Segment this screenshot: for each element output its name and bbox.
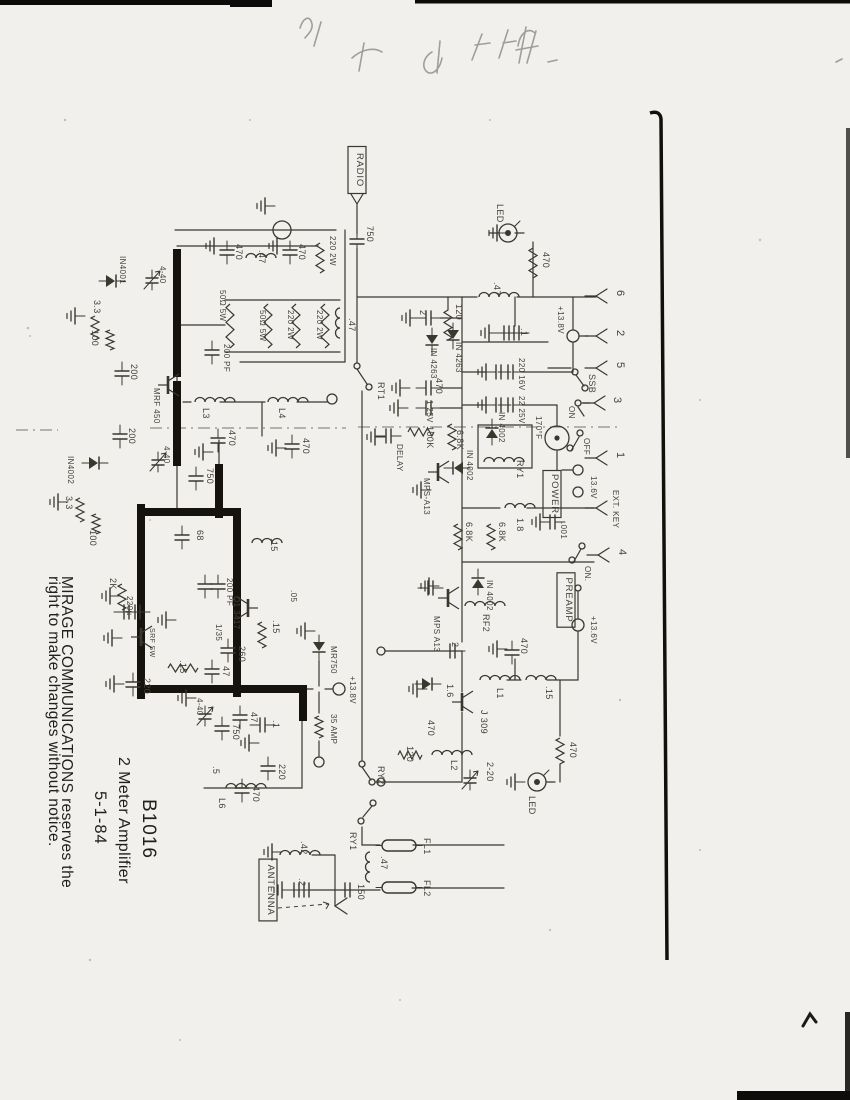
ground-icon [390,400,408,416]
component-label: RY1 [348,832,358,851]
component-label: 200 [127,428,137,444]
wire [576,375,584,386]
ground-icon [297,623,315,639]
component-label: 1 25V [425,400,434,423]
ground-icon [507,774,525,790]
component-label: OFF [582,438,591,455]
terminal-circle [579,543,585,549]
component-label: MPS-A13 [422,478,431,515]
component-label: 3 [611,397,623,404]
inductor-icon [480,676,520,681]
component-label: 470 [297,244,307,260]
component-label: IN 4263 [454,342,463,373]
component-label: DELAY [395,444,404,472]
component-label: 470 [301,438,311,454]
signal-label: ANTENNA [265,865,276,916]
inductor-icon [336,308,341,338]
component-label: 1.8 [515,518,525,532]
component-label: 220 2W [328,236,337,266]
component-label: .42 [299,841,309,855]
capacitor-icon [285,435,299,458]
inductor-icon [465,602,505,607]
component-label: IN 4002 [485,580,494,611]
component-label: L3 [201,408,211,419]
capacitor-icon [220,241,234,264]
model-number: B1016 [138,799,159,859]
component-label: L4 [277,408,287,419]
component-label: ON [567,406,576,419]
component-label: EXT. KEY [611,490,620,529]
capacitor-icon [376,429,401,443]
ground-icon [158,612,176,628]
connector-chevron-icon [583,396,605,410]
signal-label: POWER [549,474,560,514]
ground-icon [104,630,122,646]
component-label: 220µ [125,596,134,616]
wire [362,767,371,780]
inductor-icon [268,398,308,403]
component-label: 50Ω 5W [258,310,267,342]
component-label: RT1 [376,382,386,400]
ground-icon [257,198,275,214]
component-label: .47 [379,856,389,870]
revision-date: 5-1-84 [91,791,109,845]
component-label: .15 [178,660,188,674]
component-label: 470 [434,378,444,394]
ground-icon [268,440,286,456]
component-label: IN4002 [66,456,75,484]
wire [578,407,584,416]
ground-icon [241,735,259,751]
component-label: 2-20 [485,762,495,782]
component-label: RF2 [481,614,491,632]
component-label: 6.8K [464,522,474,542]
component-label: MR750 [329,646,338,674]
component-label: .05 [289,590,298,602]
capacitor-icon [235,779,249,802]
capacitor-icon [211,429,225,452]
product-name: 2 Meter Amplifier [115,757,132,884]
terminal-circle [333,683,345,695]
diode-icon [82,457,108,469]
signal-label: RADIO [354,153,365,187]
component-label: 1/35 [214,624,223,641]
antenna-icon [278,898,347,914]
signal-label-box: ANTENNA [259,859,277,921]
component-label: 170°F [534,416,543,439]
ground-icon [367,429,385,445]
component-label: 22 25V [517,396,526,424]
component-label: 1 [614,452,626,459]
component-label: FL2 [422,880,432,897]
capacitor-icon [350,230,364,253]
component-label: LED [495,204,505,223]
component-label: IN 4002 [465,450,474,481]
component-label: 220 16V [517,358,526,391]
scanned-schematic-page: MIRAGE COMMUNICATIONS reserves the right… [0,0,850,1100]
component-label: RY2 [376,766,386,785]
component-label: 220 2W [315,310,324,340]
capacitor-icon [261,757,275,780]
component-label: 220 [277,764,287,780]
wire [351,194,357,204]
component-label: SRF SW [148,628,155,658]
component-label: 100K [425,426,435,449]
component-label: 2K [108,578,118,590]
capacitor-icon [505,641,519,664]
component-label: 200 PF [222,344,231,372]
resistor-icon [106,330,114,350]
component-label: 2 [418,310,428,315]
component-label: 13.6V [589,476,598,499]
resistor-icon [258,622,266,648]
component-label: 2 [450,642,460,647]
inductor-icon [195,398,235,403]
capacitor-icon [189,467,203,490]
resistor-icon [76,498,84,522]
led-icon [528,770,549,791]
component-label: 220 2W [286,310,295,340]
component-label: IN4001 [118,256,127,284]
inductor-icon [526,676,556,681]
component-label: 6 [614,290,626,297]
component-label: ON. [583,566,592,581]
terminal-circle [573,465,583,475]
resistor-icon [315,716,323,738]
connector-chevron-icon [585,501,607,515]
component-label: 6.8K [497,522,507,542]
capacitor-icon [221,639,235,662]
diode-icon [472,569,484,595]
scan-specks [27,119,762,1041]
component-label: 4 [616,549,628,556]
capacitor-icon [113,425,127,448]
component-label: IN 4002 [497,412,506,443]
wire [357,369,367,384]
ground-icon [264,844,282,860]
wire [363,806,372,817]
component-label: .47 [492,282,502,296]
handwriting-marks [300,18,842,73]
ground-icon [402,310,420,326]
component-label: +13.8V [348,676,357,704]
capacitor-icon [205,660,219,683]
component-label: .5 [211,766,221,774]
component-label: RY1 [515,460,525,479]
diode-icon [415,678,441,690]
component-label: .15 [271,620,281,634]
terminal-circle [577,430,583,436]
diode-icon [486,419,498,445]
transistor-icon [438,587,459,609]
thermal-switch-icon [545,426,569,450]
component-label: 120 [405,746,415,762]
component-label: 47 [221,666,231,677]
trimmer-capacitor-icon [144,270,160,290]
terminal-circle [327,394,337,404]
led-icon [499,221,520,242]
component-label: 470 [234,244,244,260]
component-label: 3.3 [64,496,74,510]
component-label: 200 [129,364,139,380]
terminal-circle [359,761,365,767]
capacitor-icon [198,575,212,598]
connector-chevron-icon [585,361,607,375]
component-label: L6 [217,798,227,809]
component-label: L2 [449,760,459,771]
inductor-icon [432,751,472,755]
signal-label: PREAMP [563,578,574,623]
component-label: L1 [495,688,505,699]
component-label: 150 [356,884,366,900]
component-label: LED [527,796,537,815]
component-label: 470 [541,252,551,268]
component-label: Q1 3417 [232,596,241,630]
capacitor-icon [115,362,129,385]
component-label: .2 [297,878,307,886]
component-label: 35 AMP [329,714,338,744]
component-label: 260 [237,646,247,662]
ground-icon [102,588,120,604]
resistor-icon [454,524,462,550]
terminal-circle [370,800,376,806]
wire [357,194,363,204]
capacitor-icon [283,241,297,264]
ground-icon [392,380,410,396]
scan-edge-artifacts [0,0,850,1100]
component-label: 47 [249,712,259,723]
component-label: .1 [271,720,281,728]
terminal-circle [575,585,581,591]
component-label: 120 [454,304,464,320]
connector-chevron-icon [585,329,607,343]
ground-icon [67,308,85,324]
component-label: MRF 450 [152,388,161,424]
component-label: .47 [257,250,267,264]
component-label: 220 [142,678,152,694]
component-label: 5 [614,362,626,369]
component-label: 50Ω 5W [218,290,227,322]
resistor-icon [529,248,537,278]
component-label: .47 [347,318,357,332]
terminal-circle [567,330,579,342]
terminal-circle [354,363,360,369]
terminal-circle [358,818,364,824]
terminal-circle [369,779,375,785]
terminal-circle [377,647,385,655]
component-label: 750 [365,226,375,242]
component-label: .1 [519,328,529,336]
capacitor-icon [211,575,225,598]
component-label: .15 [269,538,279,552]
component-label: IN 4263 [429,348,438,379]
component-label: .001 [559,522,568,539]
inductor-icon [366,852,371,882]
schematic-canvas: MIRAGE COMMUNICATIONS reserves the right… [0,0,850,1100]
component-label: 4-40 [158,266,167,284]
inductor-icon [505,504,535,508]
component-label: 750 [231,724,241,740]
ground-icon [489,641,507,657]
component-label: 470 [251,786,261,802]
terminal-circle [573,487,583,497]
resistor-icon [448,424,456,450]
component-label: FL1 [422,838,432,855]
capacitor-icon [205,341,219,364]
terminal-circle [366,384,372,390]
notice-line-2: right to make changes without notice. [45,576,62,847]
component-label: MPS A13 [432,616,441,652]
component-label: 2 [614,330,626,337]
component-label: 6.8K [455,430,465,450]
trimmer-capacitor-icon [462,770,478,790]
component-label: 100 [88,530,98,546]
component-label: 4-40 [162,446,171,464]
component-label: J 309 [479,710,489,734]
ground-icon [532,514,550,530]
signal-label-box: RADIO [348,147,366,194]
component-label: 1.6 [445,684,455,698]
component-label: +13.8V [556,306,565,334]
component-label: 3.3 [92,300,102,314]
component-label: 470 [227,430,237,446]
connector-chevron-icon [585,289,607,303]
component-label: 68 [195,530,205,541]
component-label: 470 [568,742,578,758]
diode-icon [313,635,325,661]
caret-mark [803,1014,816,1026]
ground-icon [421,578,439,594]
component-label: 4-40 [195,698,204,716]
connector-chevron-icon [587,548,609,562]
ground-icon [481,325,499,341]
component-label: +13.6V [589,616,598,644]
component-label: 470 [426,720,436,736]
ground-icon [106,676,124,692]
signal-label-box: PREAMP [557,573,575,627]
component-label: SSB [587,374,597,393]
signal-label-box: POWER [543,471,561,518]
component-label: 470 [519,638,529,654]
component-label: .15 [544,686,554,700]
ground-icon [195,444,213,460]
capacitor-icon [215,717,229,740]
component-label: 750 [205,468,215,484]
resistor-icon [487,524,495,550]
component-label: 100 [90,330,100,346]
capacitor-icon [418,581,443,595]
scan-fold-line [650,112,667,960]
resistor-icon [118,584,126,610]
terminal-circle [314,757,324,767]
resistor-icon [556,738,564,764]
resistor-icon [316,243,324,273]
capacitor-icon [175,526,189,549]
